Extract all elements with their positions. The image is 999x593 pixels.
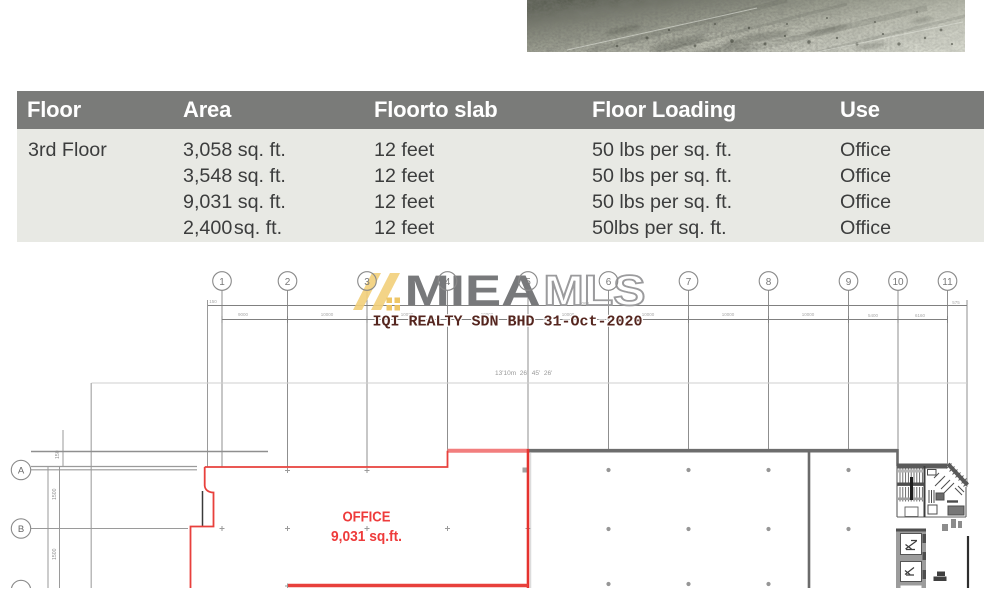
svg-text:7: 7 xyxy=(686,277,692,288)
svg-text:10000: 10000 xyxy=(802,312,815,317)
svg-text:8: 8 xyxy=(766,277,772,288)
svg-text:10000: 10000 xyxy=(722,312,735,317)
svg-text:1500: 1500 xyxy=(52,548,58,560)
svg-text:A: A xyxy=(18,466,25,477)
svg-text:B: B xyxy=(18,524,24,535)
svg-text:2: 2 xyxy=(285,277,291,288)
svg-text:MLS: MLS xyxy=(544,267,646,315)
svg-text:150: 150 xyxy=(209,299,217,304)
svg-text:5400: 5400 xyxy=(868,313,879,318)
svg-text:5: 5 xyxy=(525,277,531,288)
svg-text:13'10m 26' 45' 26': 13'10m 26' 45' 26' xyxy=(495,370,552,377)
svg-text:9000: 9000 xyxy=(238,312,249,317)
svg-text:IQI REALTY SDN BHD 31-Oct-2020: IQI REALTY SDN BHD 31-Oct-2020 xyxy=(373,314,643,331)
svg-text:575: 575 xyxy=(952,300,960,305)
svg-text:6: 6 xyxy=(606,277,612,288)
svg-text:10: 10 xyxy=(892,277,904,288)
svg-text:1500: 1500 xyxy=(52,488,58,500)
svg-text:3: 3 xyxy=(364,277,370,288)
svg-text:11: 11 xyxy=(942,277,953,288)
svg-text:4: 4 xyxy=(445,277,451,288)
svg-text:MIEA: MIEA xyxy=(405,267,541,315)
svg-text:9,031 sq.ft.: 9,031 sq.ft. xyxy=(331,529,402,545)
svg-text:1: 1 xyxy=(219,277,225,288)
svg-text:10000: 10000 xyxy=(321,312,334,317)
svg-text:6160: 6160 xyxy=(915,313,926,318)
svg-text:9: 9 xyxy=(846,277,852,288)
svg-text:OFFICE: OFFICE xyxy=(343,510,391,526)
